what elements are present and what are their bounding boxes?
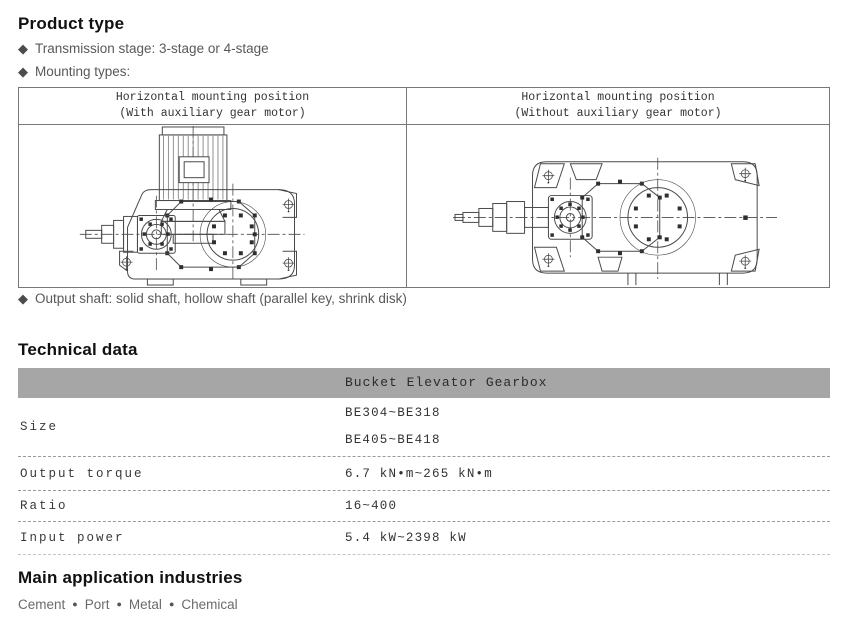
industry-item: Cement [18, 597, 65, 612]
tech-table: Size BE304~BE318 BE405~BE418 Output torq… [18, 398, 830, 555]
mounting-column-with-motor: Horizontal mounting position (With auxil… [19, 88, 406, 287]
technical-data-heading: Technical data [18, 340, 138, 360]
mounting-header-without-motor: Horizontal mounting position (Without au… [407, 88, 829, 125]
applications-heading: Main application industries [18, 568, 243, 588]
table-row-input-power: Input power 5.4 kW~2398 kW [18, 521, 830, 554]
size-range-1: BE304~BE318 [345, 400, 441, 427]
dot-separator-icon: ● [169, 600, 174, 609]
table-row-output-torque: Output torque 6.7 kN•m~265 kN•m [18, 456, 830, 490]
product-type-heading: Product type [18, 14, 124, 34]
row-value: BE304~BE318 BE405~BE418 [345, 400, 441, 454]
transmission-stage-text: Transmission stage: 3-stage or 4-stage [35, 41, 269, 56]
industry-item: Metal [129, 597, 162, 612]
mounting-header-with-motor: Horizontal mounting position (With auxil… [19, 88, 406, 125]
product-name-header: Bucket Elevator Gearbox [345, 368, 547, 398]
diamond-bullet-icon: ◆ [18, 65, 28, 78]
row-label: Ratio [18, 499, 345, 513]
mounting-header-line1: Horizontal mounting position [407, 90, 829, 106]
row-label: Size [18, 420, 345, 434]
mounting-drawing-cell [407, 125, 829, 287]
diamond-bullet-icon: ◆ [18, 292, 28, 305]
mounting-column-without-motor: Horizontal mounting position (Without au… [406, 88, 829, 287]
diamond-bullet-icon: ◆ [18, 42, 28, 55]
mounting-table: Horizontal mounting position (With auxil… [18, 87, 830, 288]
row-value: 5.4 kW~2398 kW [345, 531, 467, 545]
row-value: 6.7 kN•m~265 kN•m [345, 467, 493, 481]
row-label: Output torque [18, 467, 345, 481]
size-range-2: BE405~BE418 [345, 427, 441, 454]
row-label: Input power [18, 531, 345, 545]
hub-bolts [550, 198, 589, 237]
dot-separator-icon: ● [116, 600, 121, 609]
row-value: 16~400 [345, 499, 397, 513]
mounting-drawing-cell [19, 125, 406, 287]
tech-table-header: Bucket Elevator Gearbox [18, 368, 830, 398]
mounting-header-line2: (Without auxiliary gear motor) [407, 106, 829, 122]
output-shaft-bullet: ◆ Output shaft: solid shaft, hollow shaf… [18, 291, 407, 306]
mounting-types-bullet: ◆ Mounting types: [18, 64, 130, 79]
output-shaft-text: Output shaft: solid shaft, hollow shaft … [35, 291, 407, 306]
mounting-header-line2: (With auxiliary gear motor) [19, 106, 406, 122]
industry-item: Port [85, 597, 110, 612]
industries-list: Cement ● Port ● Metal ● Chemical [18, 597, 238, 612]
table-row-size: Size BE304~BE318 BE405~BE418 [18, 398, 830, 456]
mounting-header-line1: Horizontal mounting position [19, 90, 406, 106]
table-row-ratio: Ratio 16~400 [18, 490, 830, 521]
industry-item: Chemical [181, 597, 237, 612]
mounting-types-text: Mounting types: [35, 64, 130, 79]
product-spec-page: Product type ◆ Transmission stage: 3-sta… [0, 0, 844, 633]
dot-separator-icon: ● [72, 600, 77, 609]
transmission-stage-bullet: ◆ Transmission stage: 3-stage or 4-stage [18, 41, 269, 56]
gearbox-without-motor-drawing [448, 125, 788, 287]
gearbox-with-motor-drawing [43, 125, 383, 287]
